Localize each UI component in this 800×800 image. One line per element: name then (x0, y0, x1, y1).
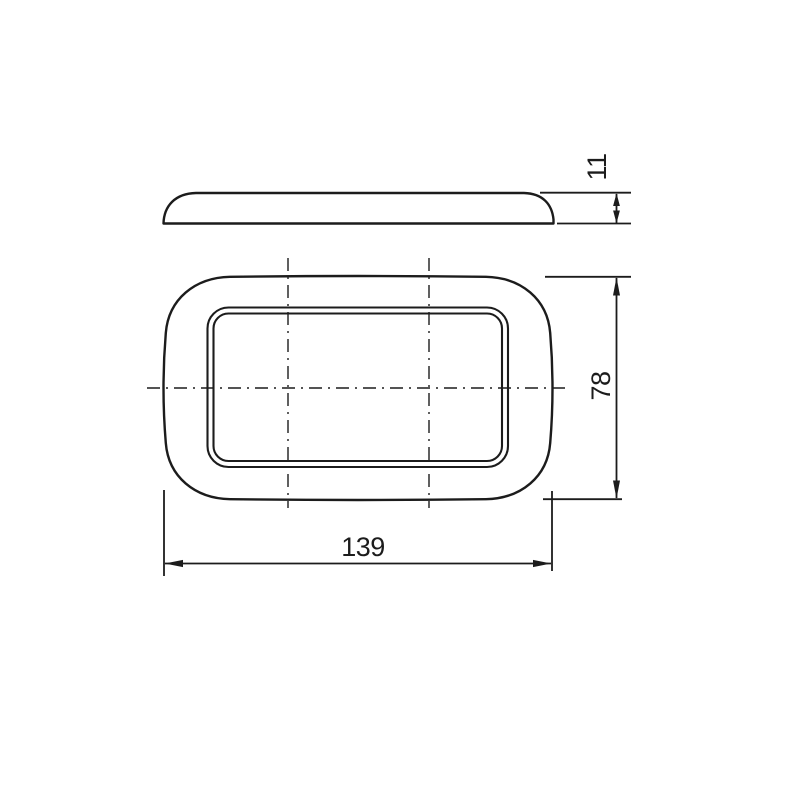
side-profile-view (164, 193, 554, 224)
inner-opening-inner-line (214, 314, 503, 462)
dim-thickness-arrow-down-icon (613, 211, 620, 224)
dim-width-arrow-left-icon (165, 560, 183, 567)
dim-height-label: 78 (586, 371, 616, 400)
inner-opening-outer-line (208, 308, 509, 468)
dim-thickness-label: 11 (582, 153, 612, 180)
drawing-canvas: 11 78 139 (0, 0, 800, 800)
technical-drawing: 11 78 139 (0, 0, 800, 800)
dim-width-arrow-right-icon (533, 560, 551, 567)
dim-thickness-arrow-up-icon (613, 193, 620, 206)
dim-thickness: 11 (540, 153, 631, 223)
dim-width-label: 139 (341, 532, 385, 562)
side-profile-outline (164, 193, 554, 224)
dim-height-arrow-down-icon (613, 481, 620, 499)
front-view (147, 258, 566, 508)
dim-height-arrow-up-icon (613, 277, 620, 295)
dim-width: 139 (164, 490, 552, 576)
